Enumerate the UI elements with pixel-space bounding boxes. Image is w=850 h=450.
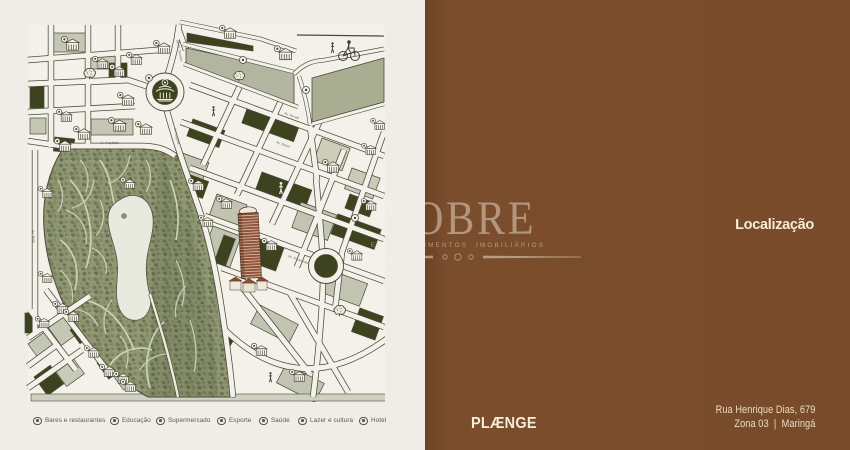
svg-text:Av. Tietê: Av. Tietê [31,230,35,243]
svg-text:Av. Arquiteto: Av. Arquiteto [100,141,119,145]
